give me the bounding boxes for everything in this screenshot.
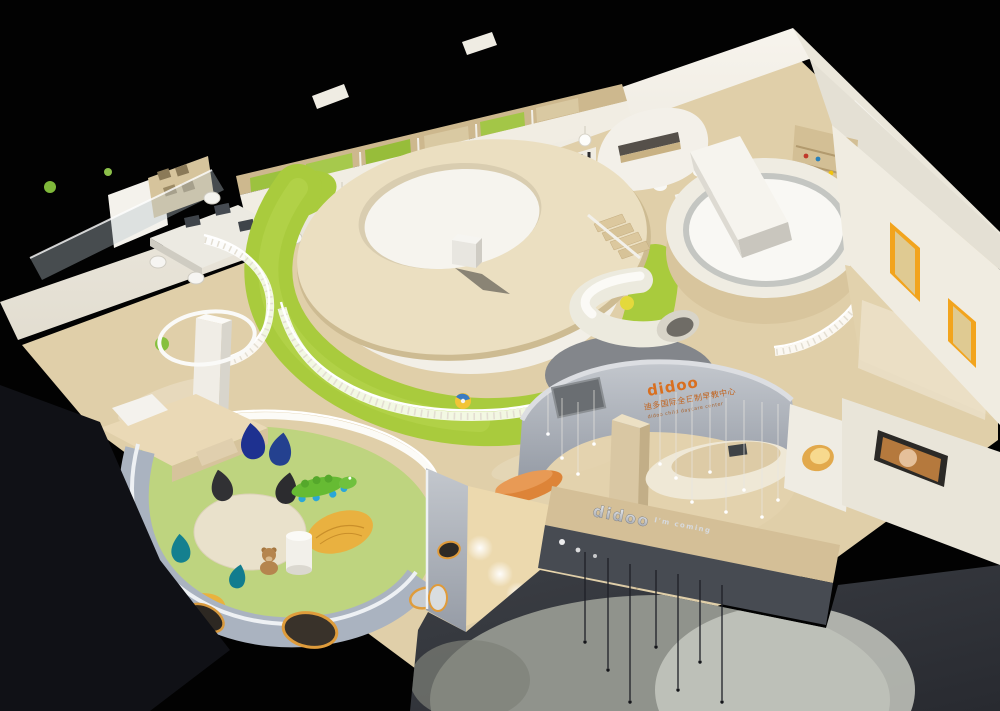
render-canvas: didoo 迪多国际全日制早教中心 didoo child daycare ce…	[0, 0, 1000, 711]
porch-spotlight	[487, 561, 513, 587]
office-chair	[188, 272, 204, 284]
beach-ball	[455, 393, 471, 409]
light-sparkle	[559, 539, 565, 545]
daycare-cutaway-render: didoo 迪多国际全日制早教中心 didoo child daycare ce…	[0, 0, 1000, 711]
round-lamp	[579, 134, 591, 146]
office-chair	[204, 192, 220, 204]
plant	[44, 181, 56, 193]
center-cube-front	[452, 240, 476, 268]
light-sparkle	[593, 554, 597, 558]
slide-ball	[620, 296, 634, 310]
porch-spotlight	[467, 535, 493, 561]
display-baby-photo	[899, 449, 917, 467]
light-sparkle	[576, 548, 581, 553]
plant	[104, 168, 112, 176]
porthole-window	[429, 585, 447, 611]
toy	[816, 157, 821, 162]
cylinder-stool	[286, 531, 312, 575]
toy	[804, 154, 809, 159]
office-chair	[150, 256, 166, 268]
